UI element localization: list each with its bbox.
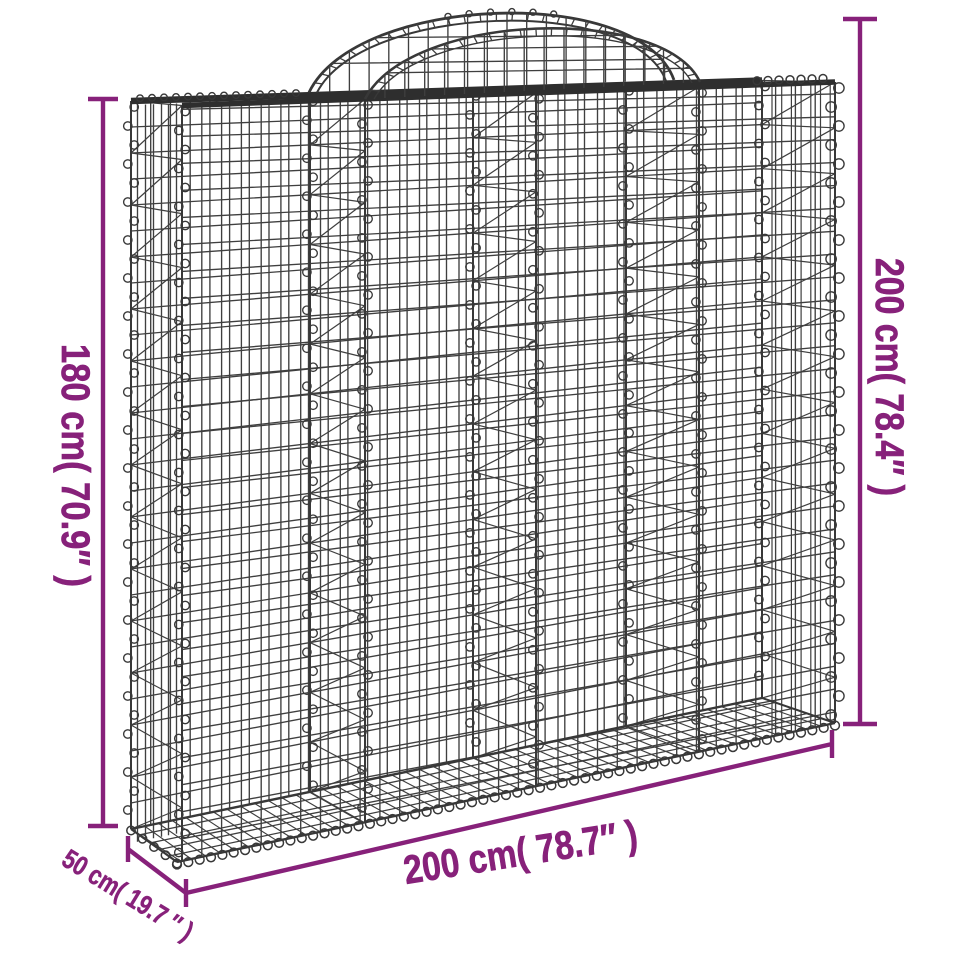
svg-text:200 cm( 78.4″ ): 200 cm( 78.4″ ) — [867, 258, 911, 496]
svg-text:180 cm( 70.9″ ): 180 cm( 70.9″ ) — [53, 344, 97, 587]
